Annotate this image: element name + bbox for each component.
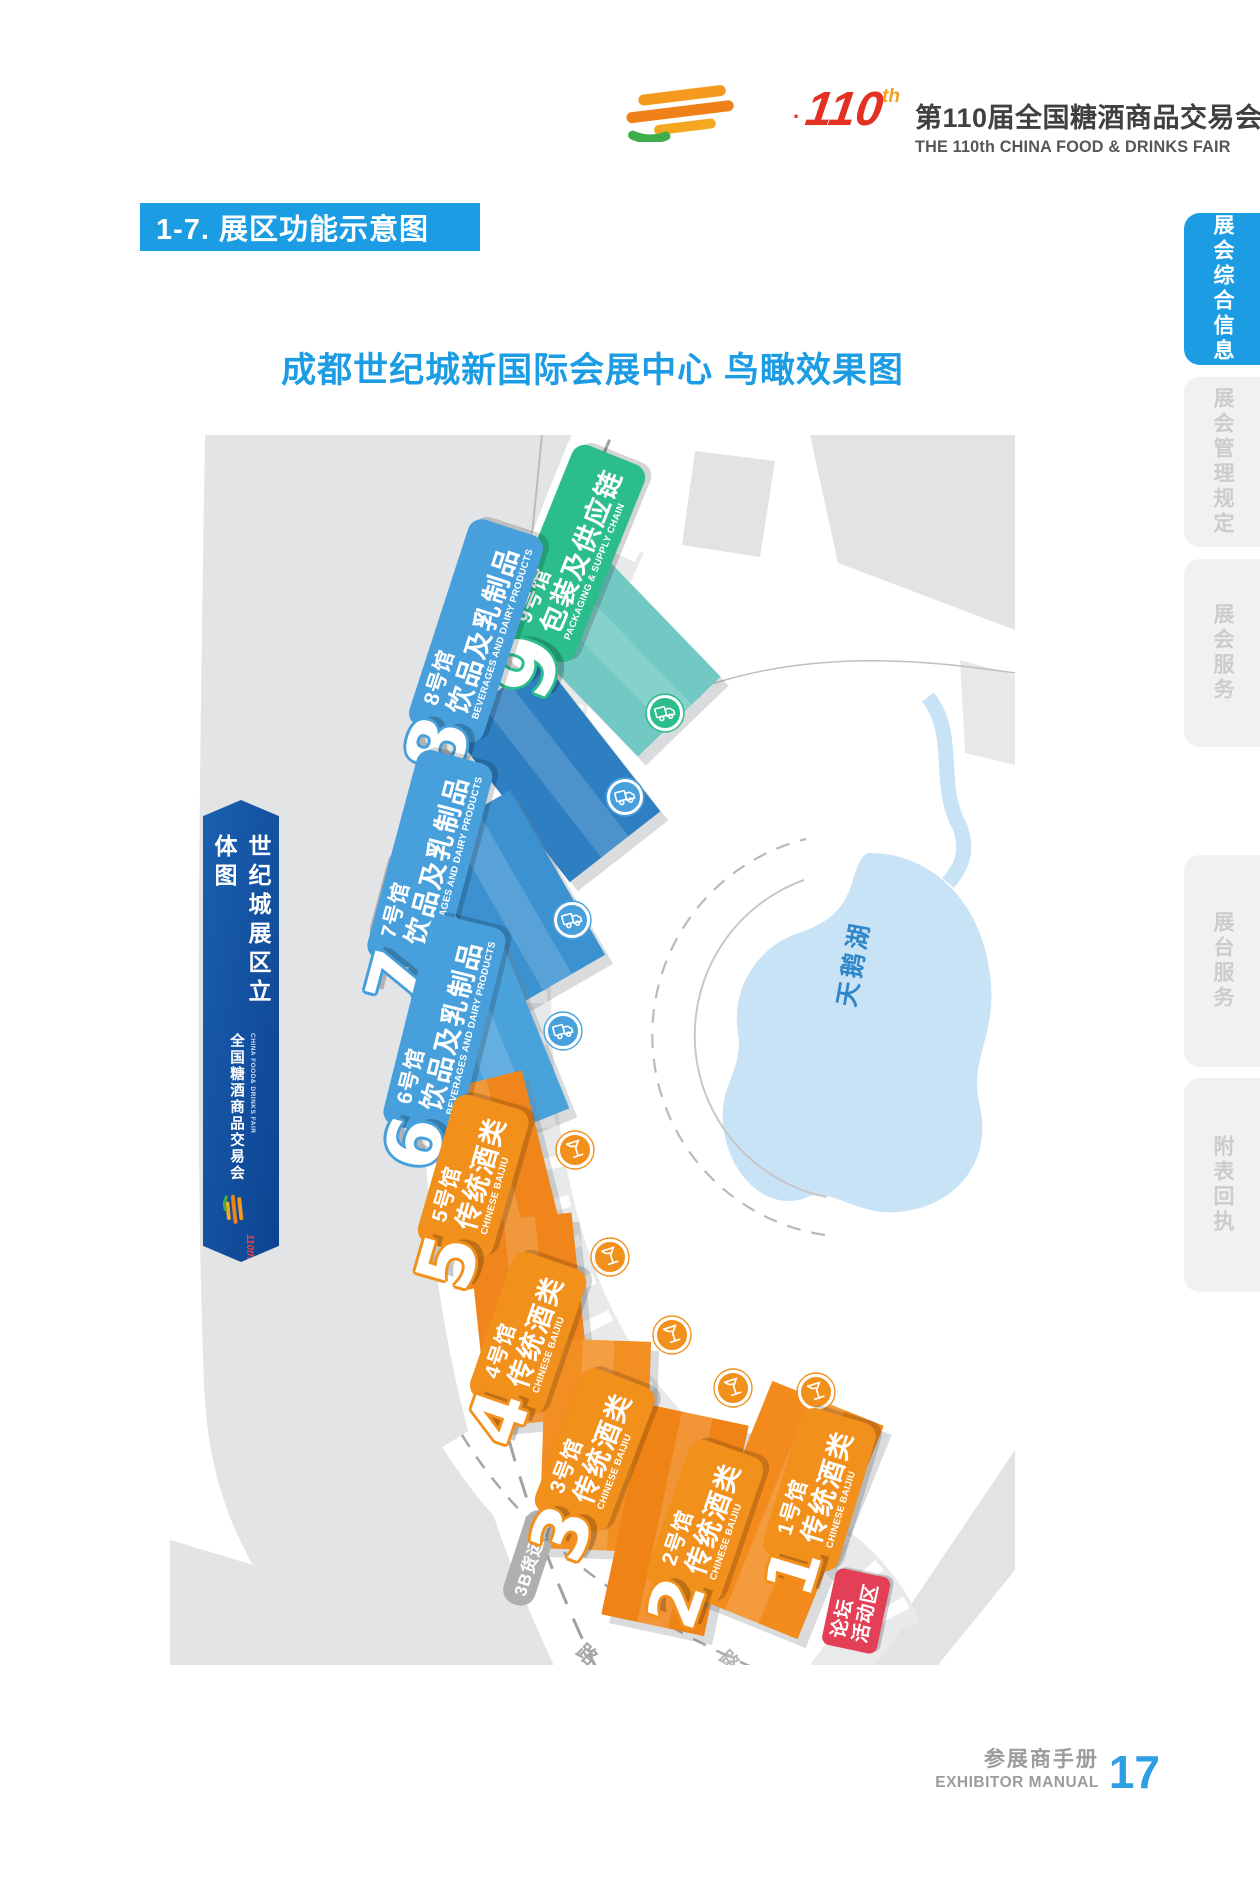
header-titles: 第110届全国糖酒商品交易会 THE 110th CHINA FOOD & DR…: [915, 96, 1245, 157]
logo-dot: ·: [793, 104, 800, 130]
sidebar-tab-label: 展会综合信息: [1207, 214, 1237, 364]
fair-title-en: THE 110th CHINA FOOD & DRINKS FAIR: [915, 138, 1245, 157]
banner-logo-110th: 110th: [244, 1234, 255, 1259]
venue-3d-map-banner: 世纪城展区立体图 全国糖酒商品交易会 CHINA FOOD& DRINKS FA…: [203, 800, 279, 1262]
banner-fair-name-en: CHINA FOOD& DRINKS FAIR: [249, 1033, 256, 1133]
map-title: 成都世纪城新国际会展中心 鸟瞰效果图: [170, 342, 1015, 393]
sidebar-tab-1[interactable]: 展会综合信息: [1184, 213, 1260, 365]
page-number: 17: [1109, 1753, 1160, 1792]
banner-fair-name-cn: 全国糖酒商品交易会: [226, 1033, 247, 1182]
venue-map: 天鹅湖 路 路 6B货运口 3B货运口 论坛 活动区 9 9号馆 包装及供应链 …: [170, 435, 1015, 1665]
fair-brush-logo-icon: 110th: [221, 1191, 261, 1262]
footer-manual-en: EXHIBITOR MANUAL: [935, 1774, 1099, 1792]
sidebar-tab-5[interactable]: 附表回执: [1184, 1078, 1260, 1292]
sidebar-tab-3[interactable]: 展会服务: [1184, 559, 1260, 747]
hall-2-label: 2 2号馆 传统酒类 CHINESE BAIJIU: [632, 1436, 767, 1639]
footer-manual-cn: 参展商手册: [935, 1743, 1099, 1773]
sidebar-tab-label: 展会服务: [1207, 603, 1237, 703]
sidebar-tab-2[interactable]: 展会管理规定: [1184, 377, 1260, 547]
fair-title-cn: 第110届全国糖酒商品交易会: [915, 96, 1245, 135]
section-title: 1-7. 展区功能示意图: [156, 206, 429, 248]
sidebar-tab-4[interactable]: 展台服务: [1184, 855, 1260, 1067]
fair-brush-logo-icon: [618, 80, 793, 142]
logo-110-number: 110: [802, 82, 886, 137]
sidebar-tab-label: 展会管理规定: [1207, 387, 1237, 537]
sidebar-tab-label: 展台服务: [1207, 911, 1237, 1011]
sidebar-tab-label: 附表回执: [1207, 1135, 1237, 1235]
map-label-layer: 6B货运口 3B货运口 论坛 活动区 9 9号馆 包装及供应链 PACKAGIN…: [170, 435, 1015, 1665]
logo-th-suffix: th: [882, 86, 900, 108]
page-footer: 参展商手册 EXHIBITOR MANUAL 17: [935, 1743, 1160, 1792]
section-title-bar: 1-7. 展区功能示意图: [140, 203, 480, 251]
banner-title: 世纪城展区立体图: [207, 834, 275, 1013]
